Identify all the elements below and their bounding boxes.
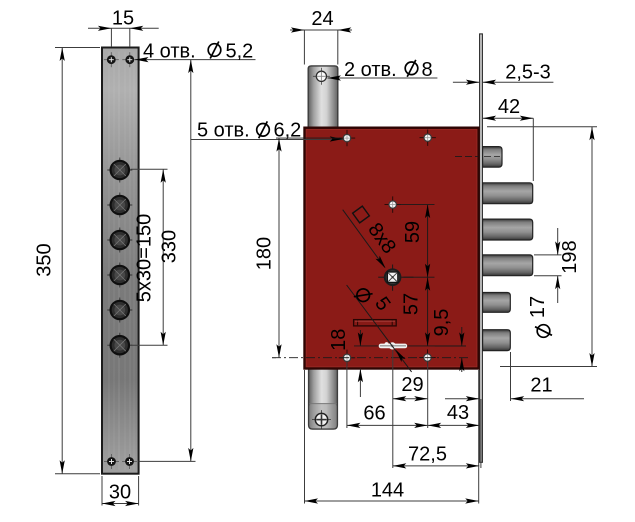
- svg-text:180: 180: [254, 237, 276, 270]
- svg-text:59: 59: [402, 221, 424, 243]
- svg-text:5x30=150: 5x30=150: [134, 214, 156, 302]
- svg-text:30: 30: [109, 482, 131, 504]
- svg-text:8: 8: [422, 59, 433, 81]
- svg-text:198: 198: [559, 240, 581, 273]
- svg-text:21: 21: [530, 375, 552, 397]
- svg-text:24: 24: [311, 8, 333, 30]
- svg-text:43: 43: [447, 402, 469, 424]
- svg-text:2,5-3: 2,5-3: [505, 61, 551, 83]
- svg-text:330: 330: [158, 230, 180, 263]
- svg-text:5,2: 5,2: [226, 41, 254, 63]
- svg-text:350: 350: [34, 243, 56, 276]
- svg-text:66: 66: [363, 403, 385, 425]
- svg-text:17: 17: [527, 296, 549, 318]
- svg-text:2 отв.: 2 отв.: [344, 59, 397, 81]
- svg-text:15: 15: [112, 8, 134, 30]
- svg-text:57: 57: [401, 293, 423, 315]
- svg-text:72,5: 72,5: [408, 444, 447, 466]
- svg-text:29: 29: [401, 374, 423, 396]
- svg-text:18: 18: [328, 329, 350, 351]
- svg-text:42: 42: [498, 96, 520, 118]
- svg-text:144: 144: [371, 480, 404, 502]
- svg-text:4 отв.: 4 отв.: [143, 41, 196, 63]
- svg-text:9,5: 9,5: [431, 309, 453, 337]
- svg-text:5 отв.: 5 отв.: [197, 119, 250, 141]
